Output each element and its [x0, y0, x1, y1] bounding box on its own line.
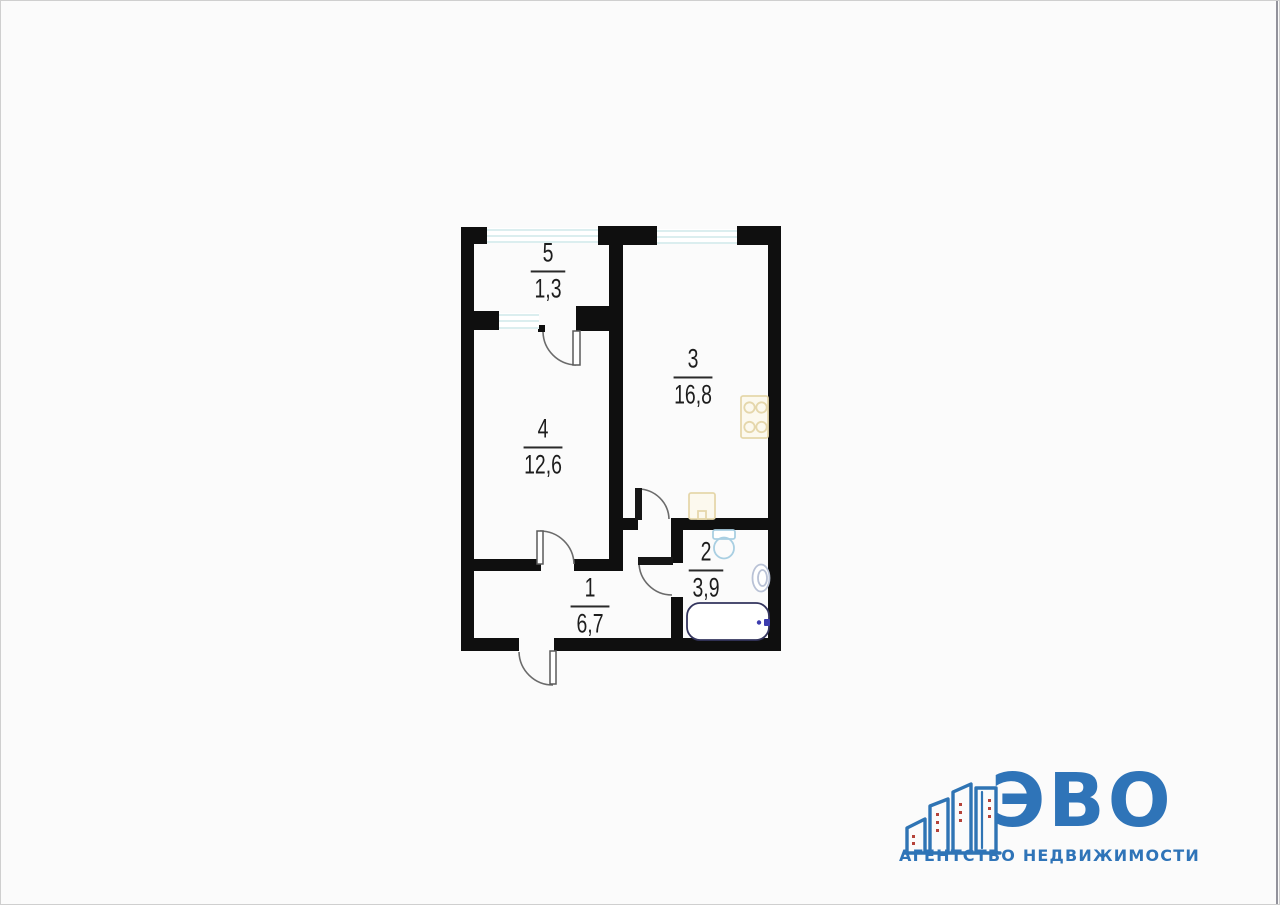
door-leaf-bathroom [638, 557, 673, 565]
door-arc-living [540, 531, 574, 564]
page: 5 1,3 3 16,8 4 12,6 1 6,7 2 3,9 [0, 0, 1280, 905]
fraction-bar [674, 376, 713, 378]
room-area: 6,7 [576, 608, 603, 638]
fraction-bar [524, 446, 563, 448]
fraction-bar [689, 569, 724, 571]
sink-icon [689, 493, 715, 519]
agency-logo: ЭВО АГЕНТСТВО НЕДВИЖИМОСТИ [891, 751, 1211, 881]
window-balcony-door-icon [499, 313, 539, 329]
door-leaf-balcony [573, 331, 580, 365]
room-label-bathroom: 2 3,9 [689, 538, 724, 601]
room-number: 4 [538, 413, 549, 443]
room-number: 1 [585, 572, 596, 602]
right-edge-line [1276, 1, 1278, 905]
door-arc-balcony [543, 332, 576, 365]
room-number: 3 [688, 343, 699, 373]
room-area: 3,9 [692, 572, 719, 602]
room-label-kitchen: 3 16,8 [674, 345, 713, 408]
kitchen-fixtures [689, 396, 768, 519]
room-label-living: 4 12,6 [524, 415, 563, 478]
door-leaf-entrance [550, 651, 556, 684]
door-leaf-living [537, 531, 543, 564]
room-area: 1,3 [534, 273, 561, 303]
room-label-balcony: 5 1,3 [531, 239, 566, 302]
floor-plan [441, 216, 801, 696]
fraction-bar [571, 605, 610, 607]
door-arc-kitchen [638, 489, 669, 519]
logo-building-icon [903, 758, 1003, 858]
floor-plan-drawing [441, 216, 801, 696]
door-arc-bathroom [639, 562, 672, 595]
stove-icon [741, 396, 768, 438]
walls [461, 226, 781, 651]
bathtub-icon [687, 603, 770, 640]
logo-tagline: АГЕНТСТВО НЕДВИЖИМОСТИ [899, 846, 1195, 865]
room-label-hallway: 1 6,7 [571, 574, 610, 637]
washbasin-icon [753, 565, 770, 592]
room-area: 12,6 [524, 449, 562, 479]
room-number: 5 [543, 237, 554, 267]
door-leaf-kitchen [635, 488, 642, 520]
fraction-bar [531, 270, 566, 272]
door-arc-entrance [519, 652, 553, 685]
room-number: 2 [701, 536, 712, 566]
logo-brand-text: ЭВО [991, 764, 1201, 838]
room-area: 16,8 [674, 379, 712, 409]
window-kitchen-top-icon [657, 229, 737, 244]
